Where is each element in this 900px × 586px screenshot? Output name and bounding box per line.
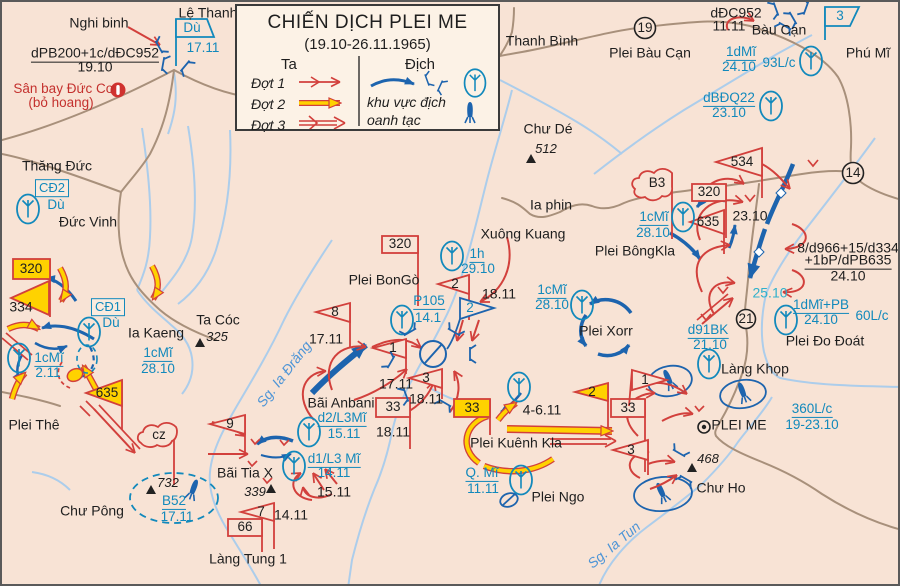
elev-512: 512	[535, 142, 557, 156]
place-thang-duc: Thăng Đức	[22, 159, 92, 174]
place-phu-mi: Phú Mĩ	[846, 46, 890, 61]
unit-1cmi-c: 1cMĩ	[143, 346, 172, 362]
date-1h: 29.10	[461, 262, 495, 276]
place-ta-coc: Ta Cóc	[196, 313, 240, 328]
elev-339: 339	[244, 485, 266, 499]
place-nghi-binh: Nghi binh	[69, 16, 128, 31]
unit-cd2-du: Dù	[47, 198, 64, 212]
flag-320-center: 320	[389, 237, 412, 251]
enemy-arrow-icon	[371, 80, 414, 86]
place-plei-bongo: Plei BonGò	[349, 273, 420, 288]
unit-334: 334	[9, 300, 32, 315]
date-1811-a: 18.11	[482, 287, 516, 302]
flag-2-blue: 2	[466, 301, 474, 315]
place-chu-de: Chư Dé	[523, 122, 572, 137]
date-1711-b: 17.11	[379, 377, 413, 392]
unit-60lc: 60L/c	[855, 309, 888, 323]
unit-93lc: 93L/c	[762, 56, 795, 70]
date-360lc: 19-23.10	[785, 418, 838, 432]
unit-cd1: CĐ1	[91, 298, 125, 316]
road-number-21: 21	[738, 312, 753, 326]
date-b52: 17.11	[161, 510, 194, 524]
date-1511: 15.11	[317, 485, 351, 500]
date-1811-b: 18.11	[409, 392, 443, 407]
flag-du-lethanh: Dù	[183, 21, 200, 35]
title-legend-box: CHIẾN DỊCH PLEI ME (19.10-26.11.1965) Ta…	[235, 4, 500, 131]
flag-2-yellow: 2	[588, 385, 596, 399]
place-xuong-kuang: Xuông Kuang	[481, 227, 566, 242]
flag-1-b: 1	[641, 373, 649, 387]
place-plei-ngo: Plei Ngo	[532, 490, 585, 505]
flag-635-west: 635	[96, 386, 119, 400]
date-d966: 24.10	[830, 269, 865, 284]
unit-1cmi-a: 1cMĩ	[639, 210, 668, 226]
flag-8: 8	[331, 305, 339, 319]
date-1dmi: 24.10	[722, 60, 756, 74]
place-bai-anbani: Bãi Anbani	[308, 396, 375, 411]
date-1dmipb: 24.10	[804, 313, 838, 327]
date-ddc952: 11.11	[713, 19, 746, 34]
date-2510: 25.10	[752, 286, 787, 301]
date-1cmi-d: 2.11	[35, 366, 60, 380]
place-thanh-binh: Thanh Bình	[506, 34, 578, 49]
flag-3-b: 3	[627, 443, 635, 457]
unit-p105: P105	[413, 294, 445, 310]
place-plei-bongkla: Plei BôngKla	[595, 244, 675, 259]
place-plei-kuenh-kla: Plei Kuênh Kla	[470, 436, 562, 451]
date-1811-c: 18.11	[376, 425, 410, 440]
date-d91bk: 21.10	[693, 338, 727, 352]
date-1411: 14.11	[274, 508, 308, 523]
place-chu-ho: Chư Ho	[696, 481, 745, 496]
flag-cz: cz	[152, 428, 166, 442]
date-du-lethanh: 17.11	[187, 41, 220, 55]
place-plei-xorr: Plei Xorr	[579, 324, 633, 339]
place-ia-kaeng: Ia Kaeng	[128, 326, 184, 341]
flag-b3: B3	[649, 176, 666, 190]
flag-33-a: 33	[385, 400, 400, 414]
unit-cd1-du: Dù	[102, 316, 119, 330]
place-bai-tia-x: Bãi Tia X	[217, 466, 273, 481]
date-1cmi-a: 28.10	[636, 226, 670, 240]
place-chu-pong: Chư Pông	[60, 504, 124, 519]
phase3-arrow-icon	[299, 116, 345, 129]
place-duc-vinh: Đức Vinh	[59, 215, 117, 230]
elev-468: 468	[697, 452, 719, 466]
place-plei-the: Plei Thê	[8, 418, 59, 433]
flag-1-a: 1	[389, 341, 397, 355]
unit-cd2: CĐ2	[35, 179, 69, 197]
flag-3-blue: 3	[836, 9, 844, 23]
place-plei-bau-can: Plei Bàu Cạn	[609, 46, 691, 61]
flag-320-ne: 320	[698, 185, 721, 199]
date-d2l3: 15.11	[328, 427, 361, 441]
place-lang-tung-1: Làng Tung 1	[209, 552, 287, 567]
date-4611: 4-6.11	[523, 403, 562, 418]
place-bau-can: Bàu Cạn	[752, 23, 806, 38]
date-1cmi-b: 28.10	[535, 298, 569, 312]
road-number-14: 14	[845, 166, 860, 180]
flag-635-ne: 635	[697, 215, 720, 229]
road-number-19: 19	[637, 21, 652, 35]
flag-534: 534	[731, 155, 754, 169]
flag-2-red: 2	[451, 277, 459, 291]
unit-d2l3: d2/L3Mĩ	[318, 411, 367, 427]
place-bo-hoang: (bỏ hoang)	[28, 96, 93, 110]
date-1cmi-c: 28.10	[141, 362, 175, 376]
flag-33-b: 33	[620, 401, 635, 415]
date-1711-a: 17.11	[309, 332, 343, 347]
date-d1l3: 14.11	[318, 466, 351, 480]
place-plei-do-doat: Plei Đo Đoát	[786, 334, 865, 349]
date-dbdq22: 23.10	[712, 106, 746, 120]
unit-360lc: 360L/c	[792, 402, 833, 418]
date-dpb200: 19.10	[77, 60, 112, 75]
date-p105: 14.1	[415, 311, 441, 325]
place-le-thanh: Lệ Thanh	[179, 6, 238, 21]
date-2310: 23.10	[732, 209, 767, 224]
elev-325: 325	[206, 330, 228, 344]
flag-33-yellow: 33	[464, 401, 479, 415]
date-qmi: 11.11	[467, 482, 499, 496]
elev-732: 732	[157, 476, 179, 490]
flag-7: 7	[257, 505, 265, 519]
flag-320-west: 320	[20, 262, 43, 276]
unit-qmi: Q. Mĩ	[466, 466, 499, 482]
place-lang-khop: Làng Khọp	[721, 362, 789, 377]
legend-graphics	[237, 6, 498, 129]
flag-66: 66	[237, 520, 252, 534]
campaign-map: CHIẾN DỊCH PLEI ME (19.10-26.11.1965) Ta…	[0, 0, 900, 586]
place-plei-me: PLEI ME	[711, 418, 766, 433]
place-ia-phin: Ia phin	[530, 198, 572, 213]
flag-9: 9	[226, 417, 234, 431]
unit-b52: B52	[162, 494, 186, 510]
flag-3-a: 3	[422, 371, 430, 385]
